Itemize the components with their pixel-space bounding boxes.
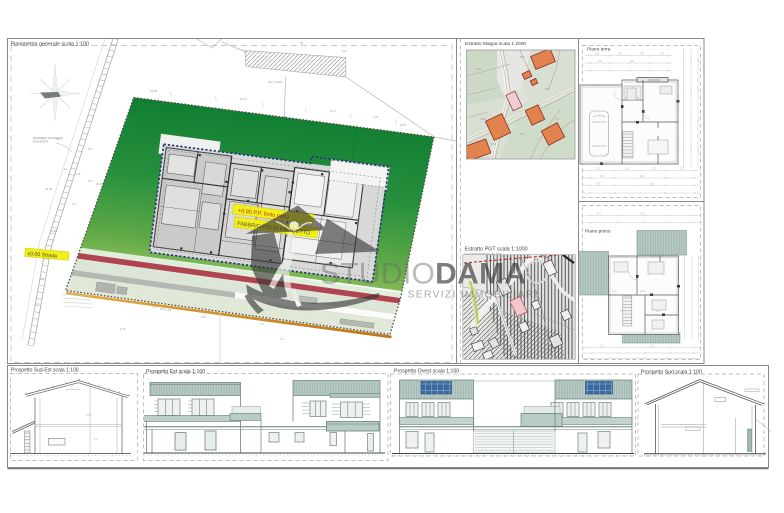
svg-text:320: 320 [598, 60, 603, 63]
svg-text:ESISTENTE: ESISTENTE [33, 140, 49, 144]
svg-text:320: 320 [650, 183, 655, 186]
svg-text:1251: 1251 [490, 142, 496, 146]
svg-text:12,4: 12,4 [330, 109, 336, 113]
svg-text:56: 56 [300, 41, 304, 45]
svg-text:Prospetto Ovest scala 1:100: Prospetto Ovest scala 1:100 [394, 369, 459, 375]
svg-text:320: 320 [596, 168, 601, 171]
svg-text:320: 320 [595, 53, 600, 56]
svg-text:2,0: 2,0 [40, 277, 44, 281]
svg-text:12,80: 12,80 [50, 229, 57, 233]
svg-text:320: 320 [596, 183, 601, 186]
svg-text:Planimetria generale scala 1:1: Planimetria generale scala 1:100 [11, 42, 90, 48]
svg-text:780: 780 [520, 132, 525, 136]
svg-text:Prospetto Est scala 1:100: Prospetto Est scala 1:100 [146, 369, 205, 375]
svg-text:791: 791 [545, 87, 550, 91]
svg-text:18,20: 18,20 [240, 97, 247, 101]
svg-text:12,5: 12,5 [596, 213, 601, 216]
svg-text:29,60: 29,60 [96, 182, 103, 186]
svg-text:12: 12 [64, 167, 68, 171]
svg-text:1250: 1250 [475, 67, 481, 71]
svg-text:320: 320 [680, 168, 685, 171]
svg-text:7,40: 7,40 [200, 315, 206, 319]
svg-text:843: 843 [520, 55, 525, 59]
svg-text:Estratto Mappa scala 1:2000: Estratto Mappa scala 1:2000 [465, 41, 526, 47]
svg-text:2,50: 2,50 [373, 115, 379, 119]
svg-text:320: 320 [618, 53, 623, 56]
svg-text:12,5: 12,5 [656, 310, 661, 313]
svg-text:320: 320 [630, 60, 635, 63]
svg-text:SERVIZI IMMOBILIARI: SERVIZI IMMOBILIARI [408, 289, 539, 301]
svg-text:6,25: 6,25 [120, 327, 126, 331]
svg-text:STUDIODAMA: STUDIODAMA [320, 258, 526, 291]
svg-text:Prospetto Sud-Est scala 1:100: Prospetto Sud-Est scala 1:100 [11, 368, 79, 374]
svg-text:24,90: 24,90 [45, 187, 52, 191]
svg-text:12,5: 12,5 [620, 310, 625, 313]
svg-text:7,25: 7,25 [75, 172, 81, 176]
svg-text:3,2: 3,2 [56, 137, 60, 141]
svg-text:dist. confine: dist. confine [268, 80, 283, 84]
svg-text:320: 320 [640, 53, 645, 56]
svg-text:12,5: 12,5 [612, 290, 617, 293]
svg-text:1,2: 1,2 [280, 337, 284, 341]
svg-text:320: 320 [600, 175, 605, 178]
svg-text:320: 320 [652, 168, 657, 171]
svg-text:320: 320 [640, 175, 645, 178]
svg-text:320: 320 [660, 53, 665, 56]
svg-text:2,70: 2,70 [86, 413, 92, 417]
svg-text:320: 320 [625, 168, 630, 171]
svg-text:1,2: 1,2 [94, 437, 98, 441]
svg-text:124: 124 [342, 49, 347, 53]
svg-text:777: 777 [555, 117, 560, 121]
svg-text:4.25: 4.25 [152, 305, 158, 309]
svg-text:Prospetto Sud scala 1:100: Prospetto Sud scala 1:100 [641, 370, 702, 376]
svg-text:2.5: 2.5 [260, 322, 264, 326]
svg-text:1249: 1249 [480, 117, 486, 121]
svg-text:24,90: 24,90 [150, 89, 157, 93]
svg-text:8,00: 8,00 [400, 123, 406, 127]
svg-text:12,5: 12,5 [640, 213, 645, 216]
svg-text:Piano primo: Piano primo [585, 229, 611, 235]
svg-text:12,5: 12,5 [650, 345, 655, 348]
svg-text:5,9: 5,9 [88, 147, 92, 151]
svg-text:3,5: 3,5 [88, 179, 92, 183]
svg-text:1.80: 1.80 [166, 308, 172, 312]
svg-text:9,1: 9,1 [72, 202, 76, 206]
svg-text:12,5: 12,5 [600, 345, 605, 348]
svg-text:12,5: 12,5 [640, 290, 645, 293]
svg-text:11: 11 [36, 302, 39, 306]
